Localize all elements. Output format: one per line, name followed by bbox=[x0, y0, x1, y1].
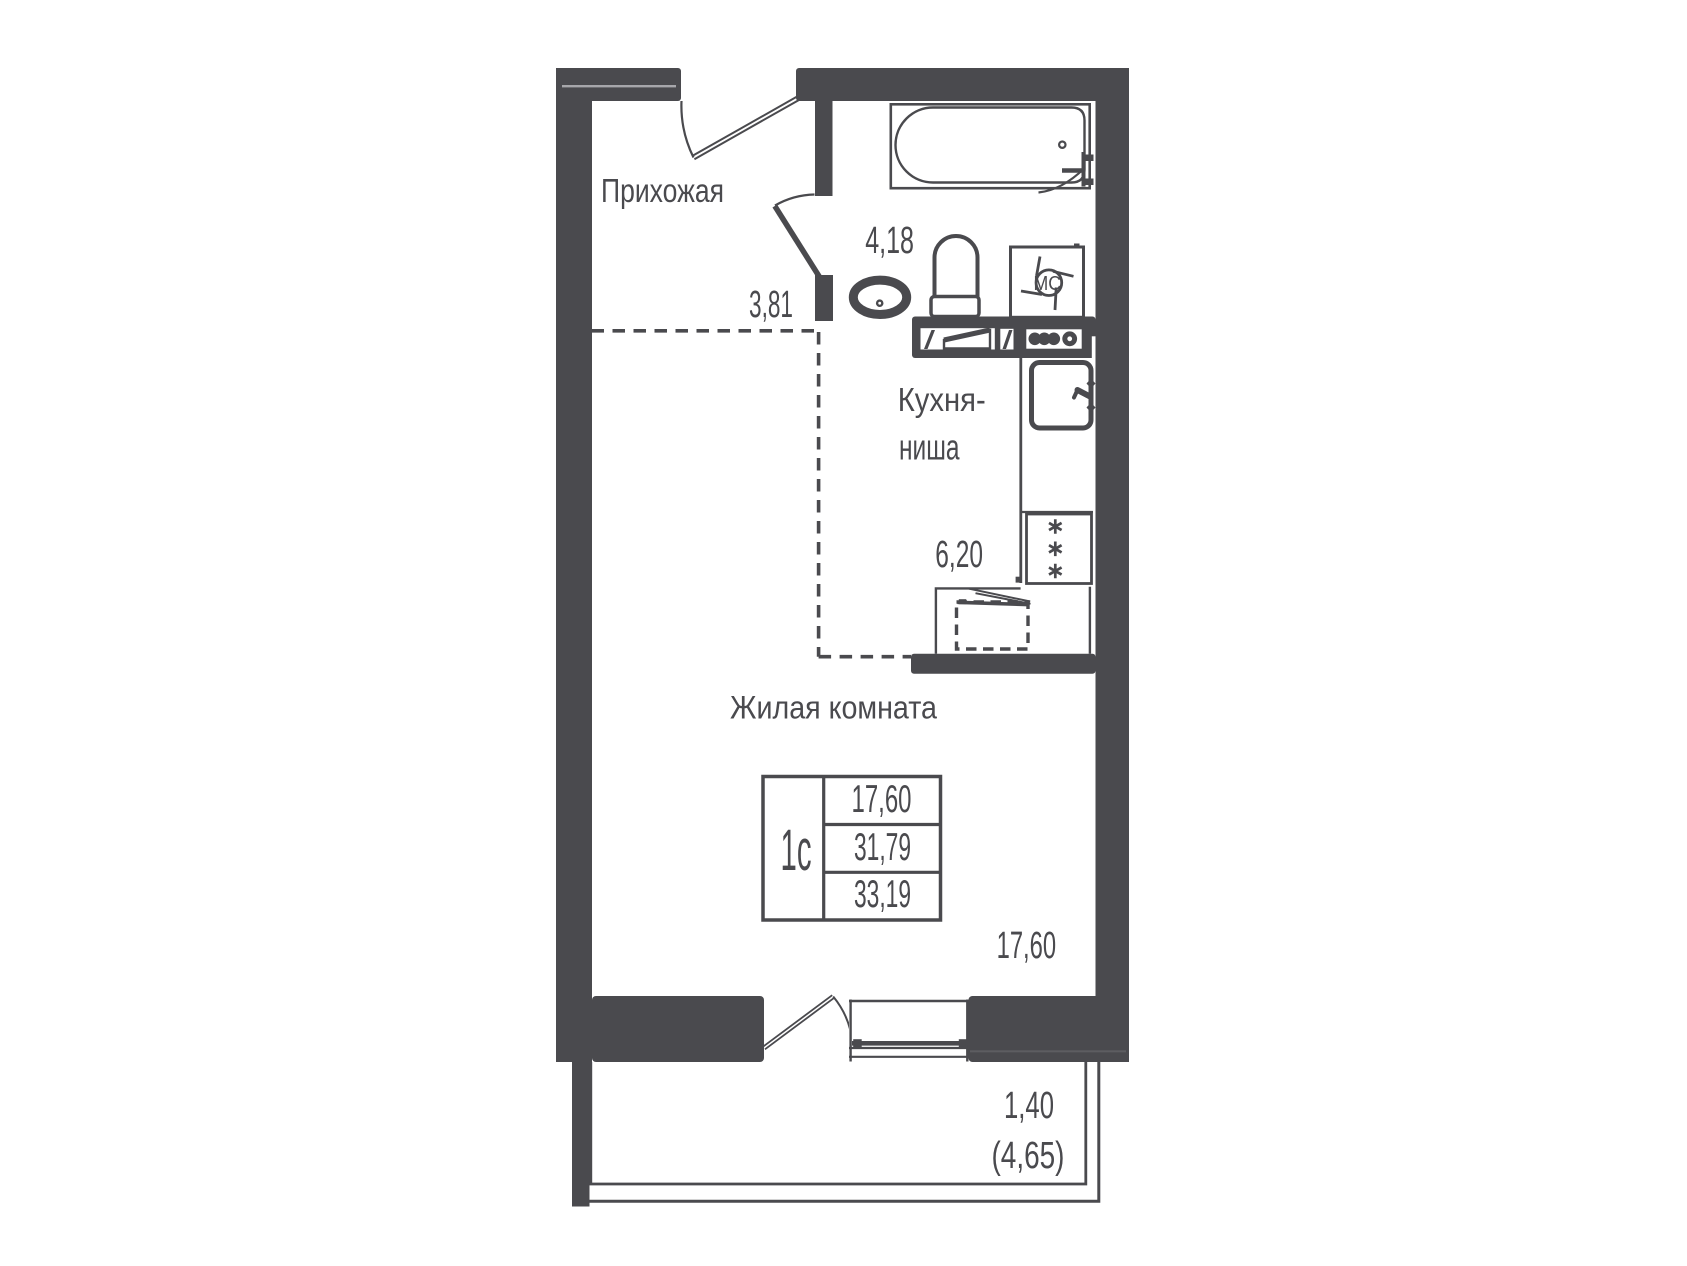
svg-text:1с: 1с bbox=[781, 818, 812, 883]
svg-text:4,18: 4,18 bbox=[865, 220, 914, 262]
svg-text:3,81: 3,81 bbox=[749, 284, 793, 326]
svg-text:17,60: 17,60 bbox=[852, 778, 912, 821]
svg-text:17,60: 17,60 bbox=[997, 925, 1057, 967]
svg-text:МС: МС bbox=[1034, 273, 1062, 295]
svg-text:Жилая комната: Жилая комната bbox=[730, 690, 938, 726]
svg-text:(4,65): (4,65) bbox=[992, 1135, 1065, 1177]
svg-text:33,19: 33,19 bbox=[854, 873, 911, 916]
svg-text:1,40: 1,40 bbox=[1004, 1085, 1054, 1127]
svg-text:ниша: ниша bbox=[899, 427, 960, 468]
svg-text:6,20: 6,20 bbox=[935, 534, 983, 576]
svg-text:Кухня-: Кухня- bbox=[898, 381, 986, 418]
svg-text:31,79: 31,79 bbox=[854, 826, 911, 869]
svg-text:Прихожая: Прихожая bbox=[601, 172, 724, 209]
